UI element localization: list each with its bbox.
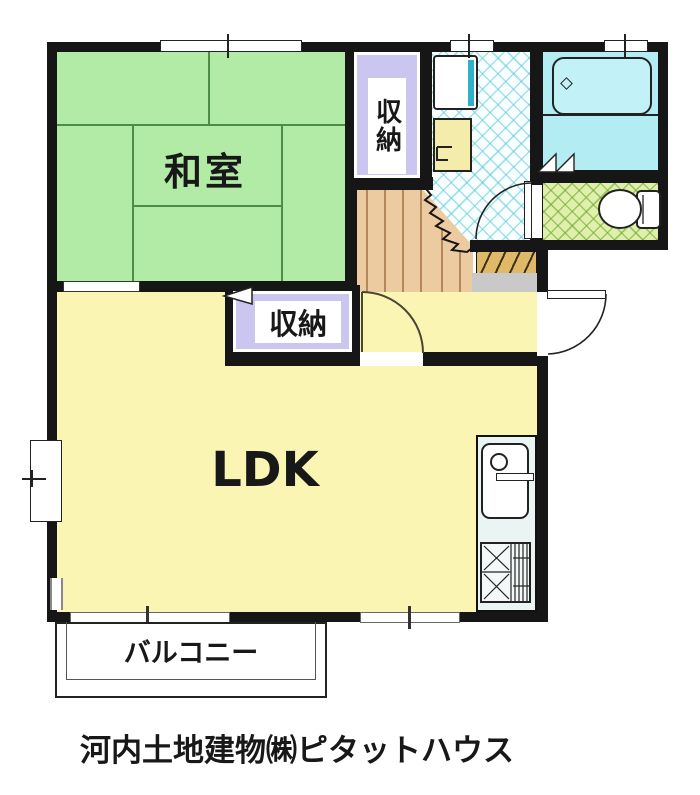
front-door-opening: [537, 292, 548, 356]
washroom-window-tick: [468, 34, 470, 58]
side-window: [50, 578, 63, 610]
wall-step-top: [470, 240, 537, 252]
wash-basin: [433, 118, 472, 172]
bay-window: [30, 440, 62, 522]
front-door-arc: [548, 294, 606, 354]
japanese-room-label-text: 和室: [164, 153, 246, 193]
tatami-window-tick: [227, 34, 229, 58]
floor-plan: 収納 収納: [0, 0, 700, 795]
wall-bath-toilet: [530, 170, 668, 183]
tatami-seam: [132, 124, 134, 281]
storage-lower-label: 収納: [269, 301, 327, 343]
bay-window-tick: [22, 478, 46, 480]
tatami-sliding-door: [63, 281, 140, 292]
tatami-window: [160, 40, 302, 52]
front-door-leaf: [547, 290, 606, 299]
tatami-seam: [57, 124, 346, 126]
bathroom-window-tick: [624, 34, 626, 58]
company-footer-text: 河内土地建物㈱ピタットハウス: [80, 735, 514, 768]
toilet-door-opening: [531, 185, 542, 238]
wall-right-upper: [658, 42, 668, 250]
ldk-label-text: LDK: [211, 445, 319, 495]
company-footer: 河内土地建物㈱ピタットハウス: [80, 730, 640, 772]
storage-lower-label-box: 収納: [255, 301, 341, 343]
storage-upper-label-box: 収納: [368, 78, 406, 174]
sink-drain-circle: [490, 453, 508, 471]
storage-upper-label: 収納: [369, 98, 406, 154]
balcony-window-tick: [408, 606, 411, 629]
balcony-label-text: バルコニー: [124, 640, 258, 668]
balcony-label: バルコニー: [55, 634, 327, 674]
tatami-seam: [132, 205, 283, 207]
wall-toilet-bottom: [533, 240, 668, 250]
bay-window-tick: [31, 470, 33, 487]
wall-storage-bottom: [345, 177, 433, 190]
wall-right-lower-b: [537, 356, 548, 622]
wall-left: [47, 42, 57, 622]
tatami-seam: [281, 124, 283, 281]
wall-top: [47, 42, 668, 52]
wall-storage-right: [418, 42, 432, 190]
japanese-room-label: 和室: [150, 150, 260, 196]
ldk-label: LDK: [205, 440, 325, 500]
bathroom-window: [604, 40, 648, 52]
tatami-seam: [208, 52, 210, 126]
gas-stove: [480, 542, 531, 603]
bath-edge-line: [543, 114, 658, 116]
washroom-window: [450, 40, 494, 52]
toilet-room-floor: [543, 183, 658, 240]
sink-faucet: [496, 473, 534, 481]
hall-door-opening: [360, 352, 423, 366]
washing-machine-tap: [468, 60, 474, 106]
washroom-door-leaf: [524, 181, 532, 239]
